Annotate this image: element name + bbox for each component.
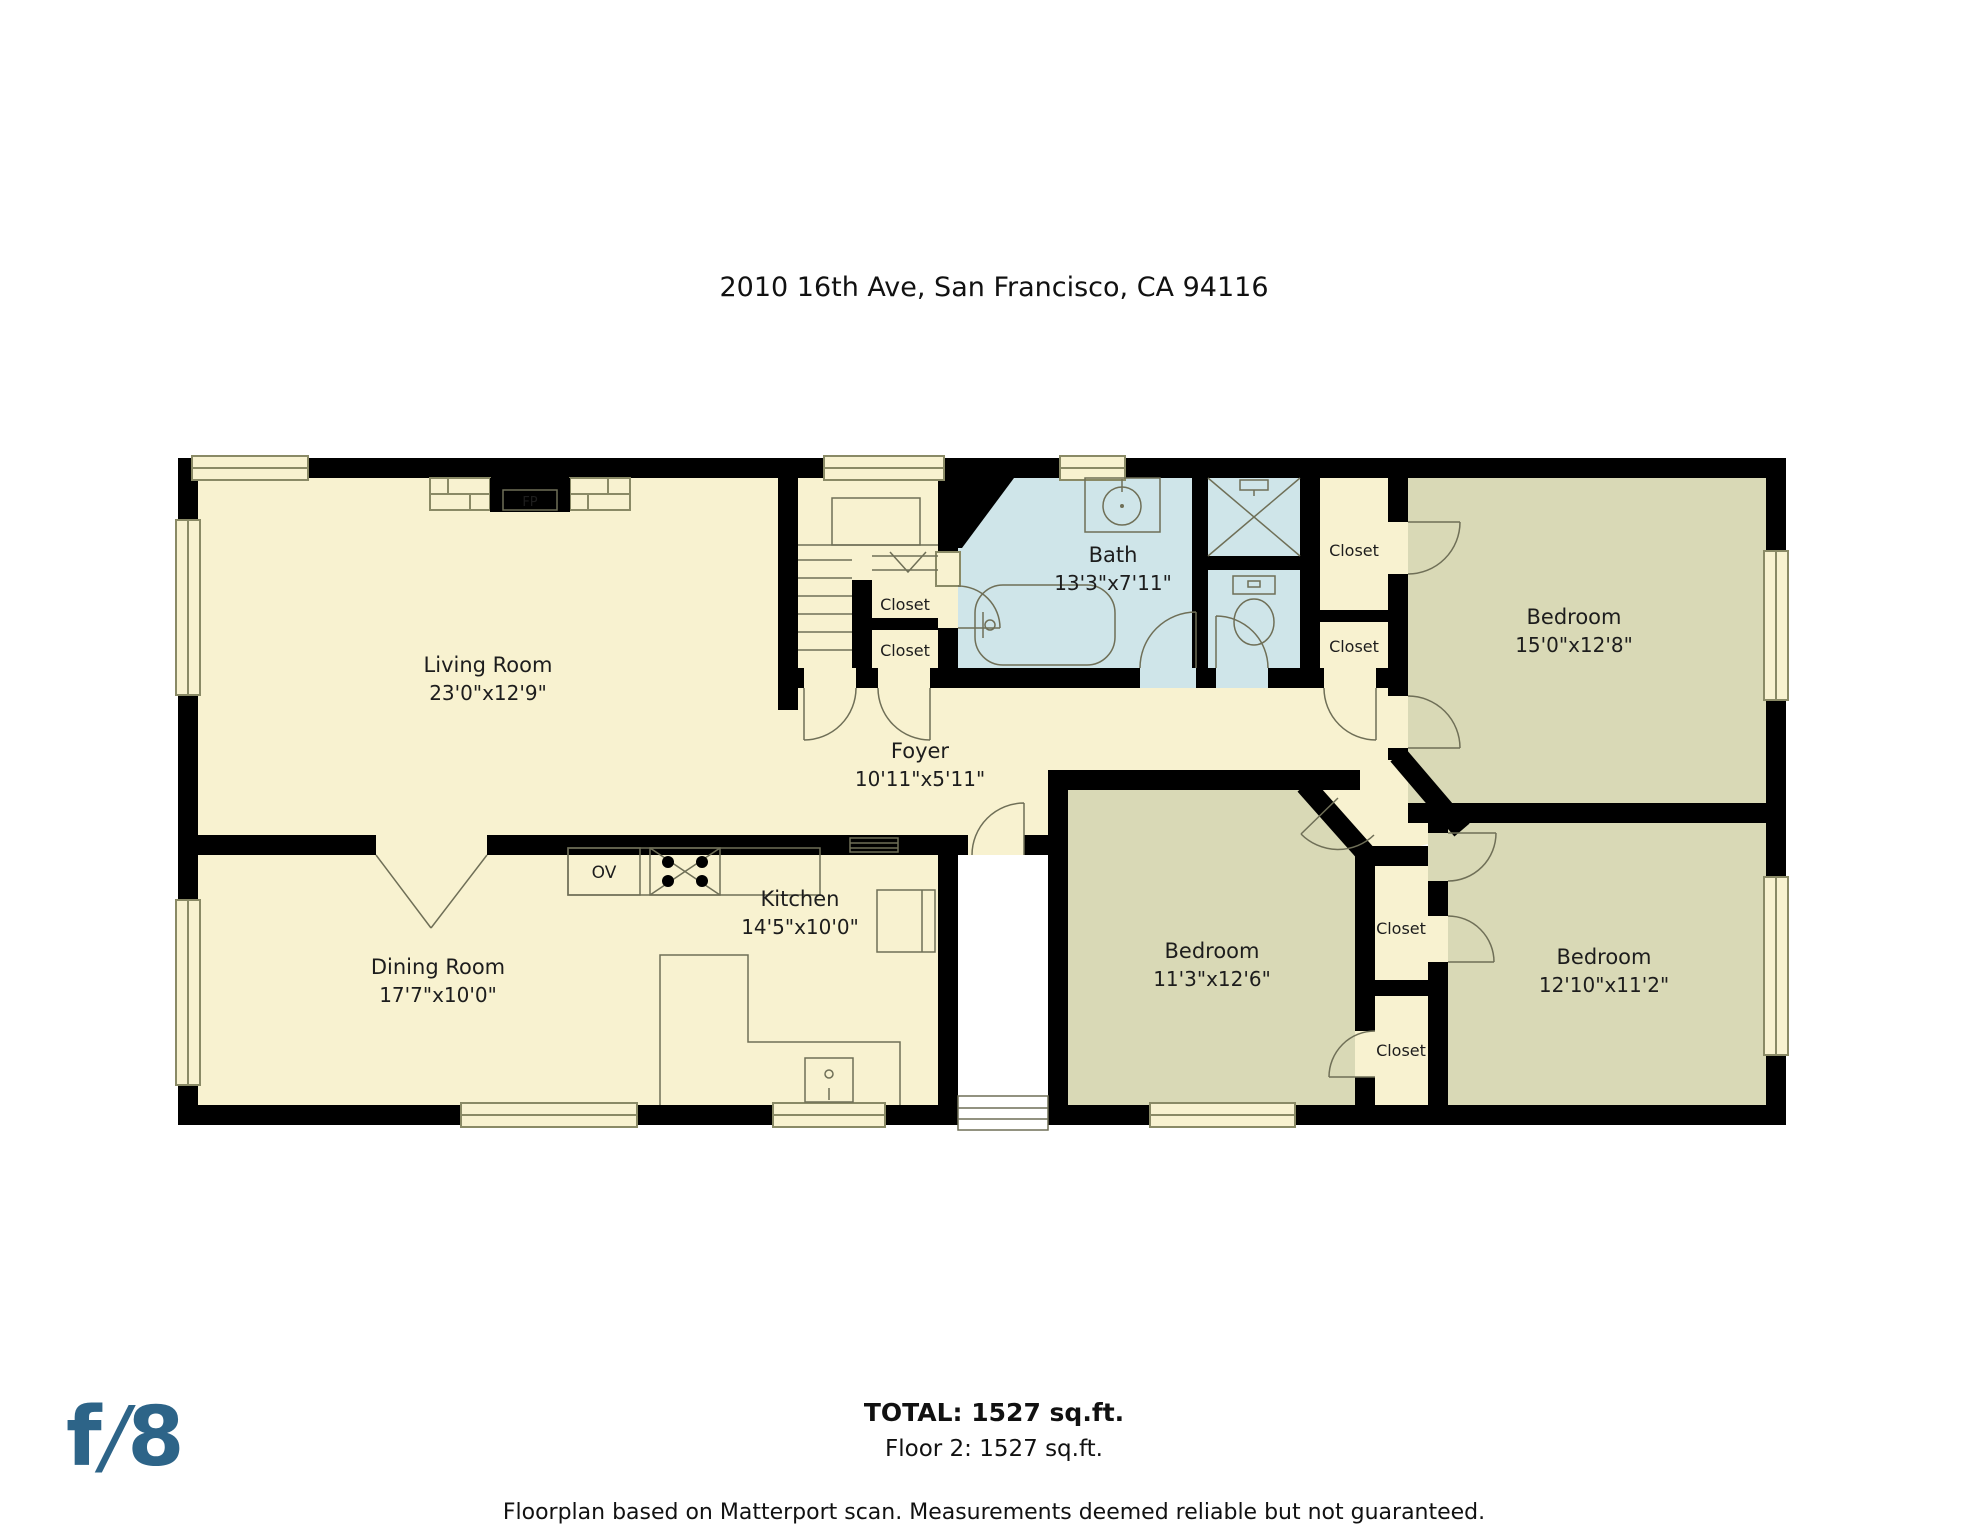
room-dining-label: Dining Room bbox=[371, 955, 505, 979]
window-bedroom-right-side bbox=[1764, 551, 1788, 700]
room-bedroom-bottom-label: Bedroom bbox=[1557, 945, 1652, 969]
footer-disclaimer: Floorplan based on Matterport scan. Meas… bbox=[0, 1500, 1988, 1525]
window-living-top bbox=[192, 456, 308, 480]
toilet-room-area bbox=[1208, 570, 1300, 668]
oven-label: OV bbox=[592, 863, 617, 883]
window-living-left bbox=[176, 520, 200, 695]
room-bath-dims: 13'3"x7'11" bbox=[1054, 571, 1172, 595]
room-kitchen-label: Kitchen bbox=[761, 887, 840, 911]
floorplan-svg: Living Room 23'0"x12'9" Dining Room 17'7… bbox=[0, 0, 1988, 1536]
window-bath-top bbox=[1060, 456, 1125, 480]
window-kitchen-bottom bbox=[773, 1103, 885, 1127]
room-foyer-dims: 10'11"x5'11" bbox=[855, 767, 985, 791]
window-dining-left bbox=[176, 900, 200, 1085]
closet-stairs-upper-label: Closet bbox=[880, 595, 930, 614]
window-bedroom-bottom-side bbox=[1764, 877, 1788, 1055]
closet-stairs-lower-label: Closet bbox=[880, 641, 930, 660]
closet-bath-lower-label: Closet bbox=[1329, 637, 1379, 656]
closet-midright-lower-label: Closet bbox=[1376, 1041, 1426, 1060]
room-bedroom-right-label: Bedroom bbox=[1527, 605, 1622, 629]
window-stair-landing bbox=[936, 552, 960, 586]
window-dining-bottom bbox=[461, 1103, 637, 1127]
room-foyer-label: Foyer bbox=[891, 739, 950, 763]
room-bedroom-right-dims: 15'0"x12'8" bbox=[1515, 633, 1633, 657]
room-bedroom-middle-dims: 11'3"x12'6" bbox=[1153, 967, 1271, 991]
closet-bath-upper-label: Closet bbox=[1329, 541, 1379, 560]
room-bedroom-middle-label: Bedroom bbox=[1165, 939, 1260, 963]
room-bedroom-bottom-dims: 12'10"x11'2" bbox=[1539, 973, 1669, 997]
window-stairs-top bbox=[824, 456, 944, 480]
room-living-dims: 23'0"x12'9" bbox=[429, 681, 547, 705]
window-bedroom-middle-bottom bbox=[1150, 1103, 1295, 1127]
room-bath-label: Bath bbox=[1089, 543, 1138, 567]
entry-notch bbox=[958, 855, 1048, 1135]
closet-midright-upper-label: Closet bbox=[1376, 919, 1426, 938]
footer-floor: Floor 2: 1527 sq.ft. bbox=[0, 1436, 1988, 1462]
room-kitchen-dims: 14'5"x10'0" bbox=[741, 915, 859, 939]
room-dining-dims: 17'7"x10'0" bbox=[379, 983, 497, 1007]
fireplace-label: FP bbox=[522, 495, 537, 510]
room-living-label: Living Room bbox=[424, 653, 553, 677]
footer-total: TOTAL: 1527 sq.ft. bbox=[0, 1398, 1988, 1427]
